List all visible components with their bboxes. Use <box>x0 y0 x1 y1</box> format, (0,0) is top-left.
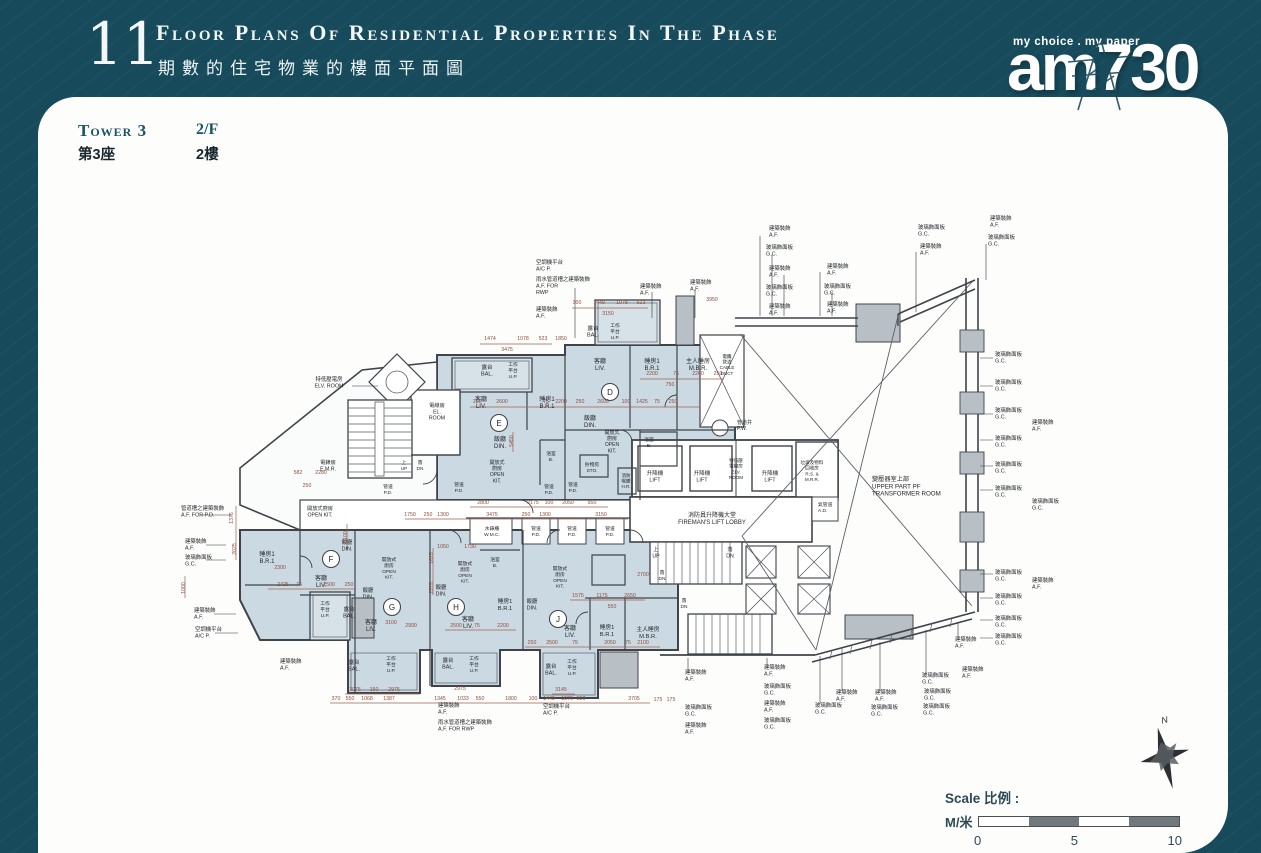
svg-text:玻璃飾面板G.C.: 玻璃飾面板G.C. <box>995 350 1023 365</box>
svg-text:玻璃飾面板G.C.: 玻璃飾面板G.C. <box>995 460 1023 475</box>
scale-label: Scale 比例 : <box>945 787 1195 807</box>
svg-text:飯廳DIN.: 飯廳DIN. <box>494 435 506 450</box>
svg-text:睡房1B.R.1: 睡房1B.R.1 <box>259 550 275 565</box>
svg-text:空調機平台A/C P.: 空調機平台A/C P. <box>543 702 570 717</box>
plan-fills <box>240 296 913 698</box>
svg-text:3100: 3100 <box>385 620 397 626</box>
svg-text:貯物房STO.: 貯物房STO. <box>585 461 600 474</box>
svg-text:100: 100 <box>529 696 538 702</box>
svg-text:管道P.D.: 管道P.D. <box>605 525 615 538</box>
svg-text:建築裝飾A.F.: 建築裝飾A.F. <box>764 699 786 714</box>
svg-text:1345: 1345 <box>434 696 446 702</box>
svg-text:550: 550 <box>608 604 617 610</box>
svg-text:工作平台U.P.: 工作平台U.P. <box>508 361 518 380</box>
svg-text:管道P.D.: 管道P.D. <box>544 483 554 496</box>
svg-text:建築裝飾A.F.: 建築裝飾A.F. <box>962 665 984 680</box>
svg-text:露台BAL.: 露台BAL. <box>545 662 557 677</box>
svg-text:2700: 2700 <box>637 572 649 578</box>
svg-text:建築裝飾A.F.: 建築裝飾A.F. <box>990 214 1012 229</box>
svg-text:2500: 2500 <box>323 582 335 588</box>
svg-text:睡房1B.R.1: 睡房1B.R.1 <box>600 623 615 638</box>
svg-text:建築裝飾A.F.: 建築裝飾A.F. <box>536 305 558 320</box>
svg-text:582: 582 <box>294 470 303 476</box>
svg-text:落DN: 落DN <box>681 597 688 610</box>
scale-unit-label: M/米 <box>945 812 978 831</box>
svg-text:消防喉轆H.R.: 消防喉轆H.R. <box>622 472 631 489</box>
svg-text:建築裝飾A.F.: 建築裝飾A.F. <box>920 242 942 257</box>
svg-text:550: 550 <box>577 696 586 702</box>
svg-text:玻璃飾面板G.C.: 玻璃飾面板G.C. <box>995 484 1023 499</box>
svg-text:客廳LIV.: 客廳LIV. <box>462 615 474 630</box>
svg-text:管道井P.W.: 管道井P.W. <box>737 419 752 432</box>
svg-text:75: 75 <box>625 640 631 646</box>
svg-text:玻璃飾面板G.C.: 玻璃飾面板G.C. <box>923 702 951 717</box>
svg-text:2300: 2300 <box>274 565 286 571</box>
svg-text:建築裝飾A.F.: 建築裝飾A.F. <box>685 668 707 683</box>
svg-text:工作平台U.P.: 工作平台U.P. <box>567 658 577 677</box>
svg-text:建築裝飾A.F.: 建築裝飾A.F. <box>955 635 977 650</box>
svg-text:玻璃飾面板G.C.: 玻璃飾面板G.C. <box>995 406 1023 421</box>
svg-text:玻璃飾面板G.C.: 玻璃飾面板G.C. <box>918 223 946 238</box>
svg-text:370: 370 <box>332 696 341 702</box>
svg-text:主人睡房M.B.R.: 主人睡房M.B.R. <box>636 625 659 640</box>
svg-text:75: 75 <box>572 640 578 646</box>
svg-text:玻璃飾面板G.C.: 玻璃飾面板G.C. <box>815 701 843 716</box>
svg-text:露台BAL.: 露台BAL. <box>587 324 599 339</box>
svg-text:消防員升降機大堂FIREMAN'S LIFT LOBBY: 消防員升降機大堂FIREMAN'S LIFT LOBBY <box>678 511 746 526</box>
svg-text:523: 523 <box>539 336 548 342</box>
svg-text:玻璃飾面板G.C.: 玻璃飾面板G.C. <box>995 632 1023 647</box>
svg-text:2200: 2200 <box>692 371 704 377</box>
svg-text:特低壓電線房ELV.ROOM: 特低壓電線房ELV.ROOM <box>729 457 743 480</box>
svg-text:玻璃飾面板G.C.: 玻璃飾面板G.C. <box>995 434 1023 449</box>
svg-text:1078: 1078 <box>616 300 628 306</box>
svg-text:2975: 2975 <box>388 687 400 693</box>
svg-text:玻璃飾面板G.C.: 玻璃飾面板G.C. <box>764 716 792 731</box>
svg-text:1175: 1175 <box>596 593 607 599</box>
svg-text:2575: 2575 <box>429 582 435 594</box>
svg-text:玻璃飾面板G.C.: 玻璃飾面板G.C. <box>685 703 713 718</box>
svg-text:變壓器室上部UPPER PART PFTRANSFORMER: 變壓器室上部UPPER PART PFTRANSFORMER ROOM <box>872 475 941 498</box>
svg-text:露台BAL.: 露台BAL. <box>442 656 454 671</box>
svg-text:管道P.D.: 管道P.D. <box>531 525 541 538</box>
svg-text:5450: 5450 <box>509 435 515 447</box>
svg-text:300: 300 <box>573 300 582 306</box>
svg-text:150: 150 <box>370 687 379 693</box>
svg-text:上UP: 上UP <box>401 459 408 472</box>
svg-text:75: 75 <box>654 399 660 405</box>
svg-text:管道P.D.: 管道P.D. <box>454 481 464 494</box>
svg-text:工作平台U.P.: 工作平台U.P. <box>320 600 330 619</box>
svg-text:玻璃飾面板G.C.: 玻璃飾面板G.C. <box>766 243 794 258</box>
svg-text:玻璃飾面板G.C.: 玻璃飾面板G.C. <box>995 568 1023 583</box>
svg-text:飯廳DIN.: 飯廳DIN. <box>363 586 374 601</box>
svg-text:雨水管道槽之建築裝飾A.F. FORRWP: 雨水管道槽之建築裝飾A.F. FORRWP <box>536 275 591 296</box>
svg-text:250: 250 <box>528 640 537 646</box>
svg-text:1076: 1076 <box>561 696 573 702</box>
svg-text:100: 100 <box>622 399 631 405</box>
svg-text:2280: 2280 <box>315 470 327 476</box>
svg-text:玻璃飾面板G.C.: 玻璃飾面板G.C. <box>988 233 1016 248</box>
svg-text:3705: 3705 <box>628 696 640 702</box>
shafts <box>746 546 830 614</box>
svg-text:2600: 2600 <box>496 399 508 405</box>
svg-text:2200: 2200 <box>646 371 658 377</box>
svg-text:3150: 3150 <box>602 311 614 317</box>
svg-text:建築裝飾A.F.: 建築裝飾A.F. <box>875 688 897 703</box>
svg-text:250: 250 <box>303 483 312 489</box>
svg-text:250: 250 <box>522 512 531 518</box>
svg-text:建築裝飾A.F.: 建築裝飾A.F. <box>1032 576 1054 591</box>
svg-text:2100: 2100 <box>637 640 649 646</box>
svg-text:建築裝飾A.F.: 建築裝飾A.F. <box>438 701 460 716</box>
svg-text:2200: 2200 <box>555 399 567 405</box>
svg-text:飯廳DIN.: 飯廳DIN. <box>584 414 596 429</box>
svg-text:客廳LIV.: 客廳LIV. <box>564 624 576 639</box>
svg-text:建築裝飾A.F.: 建築裝飾A.F. <box>640 282 662 297</box>
scale-bar: Scale 比例 : M/米 0 5 10 <box>945 787 1195 848</box>
svg-text:工作平台U.P.: 工作平台U.P. <box>386 655 396 674</box>
svg-text:2425: 2425 <box>277 582 289 588</box>
svg-text:1000: 1000 <box>181 582 187 594</box>
svg-text:露台BAL.: 露台BAL. <box>343 605 355 620</box>
svg-text:2025: 2025 <box>232 543 238 555</box>
svg-text:100: 100 <box>473 399 482 405</box>
svg-text:水錶櫃W.M.C.: 水錶櫃W.M.C. <box>484 525 500 538</box>
floor-plan: DEFGHJ 露台BAL.工作平台U.P.客廳LIV.睡房1B.R.1飯廳DIN… <box>0 0 1261 853</box>
compass-north-label: N <box>1160 714 1169 725</box>
svg-text:建築裝飾A.F.: 建築裝飾A.F. <box>769 224 791 239</box>
svg-text:1387: 1387 <box>383 696 395 702</box>
svg-text:2600: 2600 <box>597 399 609 405</box>
page: { "header": { "page_number": "11", "titl… <box>0 0 1261 853</box>
svg-text:管道P.D.: 管道P.D. <box>567 525 577 538</box>
svg-text:玻璃飾面板G.C.: 玻璃飾面板G.C. <box>185 553 213 568</box>
svg-text:175: 175 <box>667 697 676 703</box>
svg-text:3475: 3475 <box>486 512 498 518</box>
scale-tick-5: 5 <box>1071 833 1078 848</box>
svg-text:2975: 2975 <box>454 686 466 692</box>
svg-text:2050: 2050 <box>604 640 616 646</box>
svg-text:3475: 3475 <box>501 347 513 353</box>
svg-text:250: 250 <box>424 512 433 518</box>
svg-text:2175: 2175 <box>527 500 539 506</box>
svg-text:建築裝飾A.F.: 建築裝飾A.F. <box>685 721 707 736</box>
svg-text:2200: 2200 <box>497 623 509 629</box>
svg-text:建築裝飾A.F.: 建築裝飾A.F. <box>194 606 216 621</box>
svg-text:露台BAL.: 露台BAL. <box>481 363 493 378</box>
svg-text:1375: 1375 <box>229 512 235 524</box>
svg-text:建築裝飾A.F.: 建築裝飾A.F. <box>769 264 791 279</box>
svg-text:建築裝飾A.F.: 建築裝飾A.F. <box>280 657 302 672</box>
scale-tick-0: 0 <box>974 833 981 848</box>
svg-text:玻璃飾面板G.C.: 玻璃飾面板G.C. <box>824 282 852 297</box>
svg-text:管道P.D.: 管道P.D. <box>383 483 393 496</box>
svg-text:75: 75 <box>673 371 679 377</box>
svg-text:主人睡房M.B.R.: 主人睡房M.B.R. <box>686 357 710 372</box>
scale-ticks: 0 5 10 <box>974 833 1182 848</box>
svg-text:523: 523 <box>637 300 646 306</box>
svg-text:特低壓電房ELV. ROOM: 特低壓電房ELV. ROOM <box>314 375 344 390</box>
svg-text:250: 250 <box>345 582 354 588</box>
svg-text:1033: 1033 <box>457 696 469 702</box>
svg-text:D: D <box>607 388 613 397</box>
svg-text:管道P.D.: 管道P.D. <box>568 481 578 494</box>
svg-text:飯廳DIN.: 飯廳DIN. <box>527 597 538 612</box>
svg-text:1474: 1474 <box>484 336 496 342</box>
svg-text:空調機平台A/C P.: 空調機平台A/C P. <box>195 625 222 640</box>
svg-text:建築裝飾A.F.: 建築裝飾A.F. <box>185 537 207 552</box>
svg-text:3150: 3150 <box>595 512 607 518</box>
svg-text:客廳LIV.: 客廳LIV. <box>365 618 377 633</box>
svg-text:1449: 1449 <box>543 696 555 702</box>
svg-text:1050: 1050 <box>437 544 449 550</box>
svg-text:75: 75 <box>543 399 549 405</box>
svg-text:1750: 1750 <box>404 512 416 518</box>
svg-text:3950: 3950 <box>706 297 718 303</box>
svg-text:J: J <box>556 615 560 624</box>
svg-text:建築裝飾A.F.: 建築裝飾A.F. <box>764 663 786 678</box>
svg-text:露台BAL.: 露台BAL. <box>348 658 360 673</box>
svg-text:1449: 1449 <box>593 300 605 306</box>
compass-rose: N <box>1132 711 1196 794</box>
svg-text:1425: 1425 <box>636 399 648 405</box>
svg-text:F: F <box>329 555 334 564</box>
svg-text:G: G <box>389 603 395 612</box>
svg-text:2900: 2900 <box>405 623 417 629</box>
svg-text:空調機平台A/C P.: 空調機平台A/C P. <box>536 258 563 273</box>
svg-text:2800: 2800 <box>477 500 489 506</box>
svg-text:1068: 1068 <box>361 696 373 702</box>
svg-text:客廳LIV.: 客廳LIV. <box>594 357 606 372</box>
svg-text:管道槽之建築裝飾A.F. FOR P.D.: 管道槽之建築裝飾A.F. FOR P.D. <box>181 504 225 519</box>
svg-text:建築裝飾A.F.: 建築裝飾A.F. <box>827 300 849 315</box>
svg-text:250: 250 <box>576 399 585 405</box>
scale-bar-graphic <box>978 816 1180 827</box>
svg-text:2650: 2650 <box>624 593 636 599</box>
svg-text:3145: 3145 <box>555 687 567 693</box>
svg-text:1575: 1575 <box>572 593 584 599</box>
svg-text:玻璃飾面板G.C.: 玻璃飾面板G.C. <box>924 687 952 702</box>
svg-text:玻璃飾面板G.C.: 玻璃飾面板G.C. <box>995 592 1023 607</box>
svg-text:3075: 3075 <box>349 687 361 693</box>
svg-text:玻璃飾面板G.C.: 玻璃飾面板G.C. <box>995 378 1023 393</box>
svg-text:玻璃飾面板G.C.: 玻璃飾面板G.C. <box>1032 497 1060 512</box>
svg-text:玻璃飾面板G.C.: 玻璃飾面板G.C. <box>995 614 1023 629</box>
svg-text:5100: 5100 <box>343 531 349 543</box>
svg-text:1300: 1300 <box>437 512 449 518</box>
svg-text:建築裝飾A.F.: 建築裝飾A.F. <box>769 302 791 317</box>
svg-text:1850: 1850 <box>555 336 567 342</box>
svg-text:2500: 2500 <box>546 640 558 646</box>
svg-text:750: 750 <box>666 382 675 388</box>
svg-text:250: 250 <box>714 371 723 377</box>
svg-text:E: E <box>496 419 501 428</box>
svg-text:建築裝飾A.F.: 建築裝飾A.F. <box>690 278 712 293</box>
svg-text:75: 75 <box>296 582 302 588</box>
svg-text:開放式廚房OPEN KIT.: 開放式廚房OPEN KIT. <box>307 504 333 518</box>
svg-text:睡房1B.R.1: 睡房1B.R.1 <box>498 597 513 612</box>
svg-text:1730: 1730 <box>464 544 476 550</box>
svg-text:2500: 2500 <box>450 623 462 629</box>
svg-text:1800: 1800 <box>505 696 517 702</box>
svg-text:1625: 1625 <box>429 552 435 564</box>
svg-text:工作平台U.P.: 工作平台U.P. <box>610 322 620 341</box>
svg-text:75: 75 <box>474 623 480 629</box>
svg-text:玻璃飾面板G.C.: 玻璃飾面板G.C. <box>764 682 792 697</box>
svg-text:100: 100 <box>545 500 554 506</box>
svg-text:睡房1B.R.1: 睡房1B.R.1 <box>644 357 660 372</box>
svg-text:950: 950 <box>588 500 597 506</box>
svg-text:1078: 1078 <box>517 336 529 342</box>
svg-text:建築裝飾A.F.: 建築裝飾A.F. <box>836 688 858 703</box>
scale-tick-10: 10 <box>1168 833 1182 848</box>
svg-text:1300: 1300 <box>539 512 551 518</box>
svg-text:建築裝飾A.F.: 建築裝飾A.F. <box>1032 418 1054 433</box>
svg-text:建築裝飾A.F.: 建築裝飾A.F. <box>827 262 849 277</box>
svg-text:H: H <box>453 603 459 612</box>
svg-text:250: 250 <box>669 399 678 405</box>
svg-text:175: 175 <box>654 697 663 703</box>
svg-text:工作平台U.P.: 工作平台U.P. <box>469 655 479 674</box>
svg-text:550: 550 <box>476 696 485 702</box>
svg-text:2050: 2050 <box>562 500 574 506</box>
svg-text:550: 550 <box>346 696 355 702</box>
svg-text:玻璃飾面板G.C.: 玻璃飾面板G.C. <box>871 703 899 718</box>
svg-text:玻璃飾面板G.C.: 玻璃飾面板G.C. <box>922 671 950 686</box>
svg-text:玻璃飾面板G.C.: 玻璃飾面板G.C. <box>766 283 794 298</box>
svg-text:飯廳DIN.: 飯廳DIN. <box>436 583 447 598</box>
svg-text:雨水管道槽之建築裝飾A.F. FOR RWP: 雨水管道槽之建築裝飾A.F. FOR RWP <box>438 718 493 733</box>
